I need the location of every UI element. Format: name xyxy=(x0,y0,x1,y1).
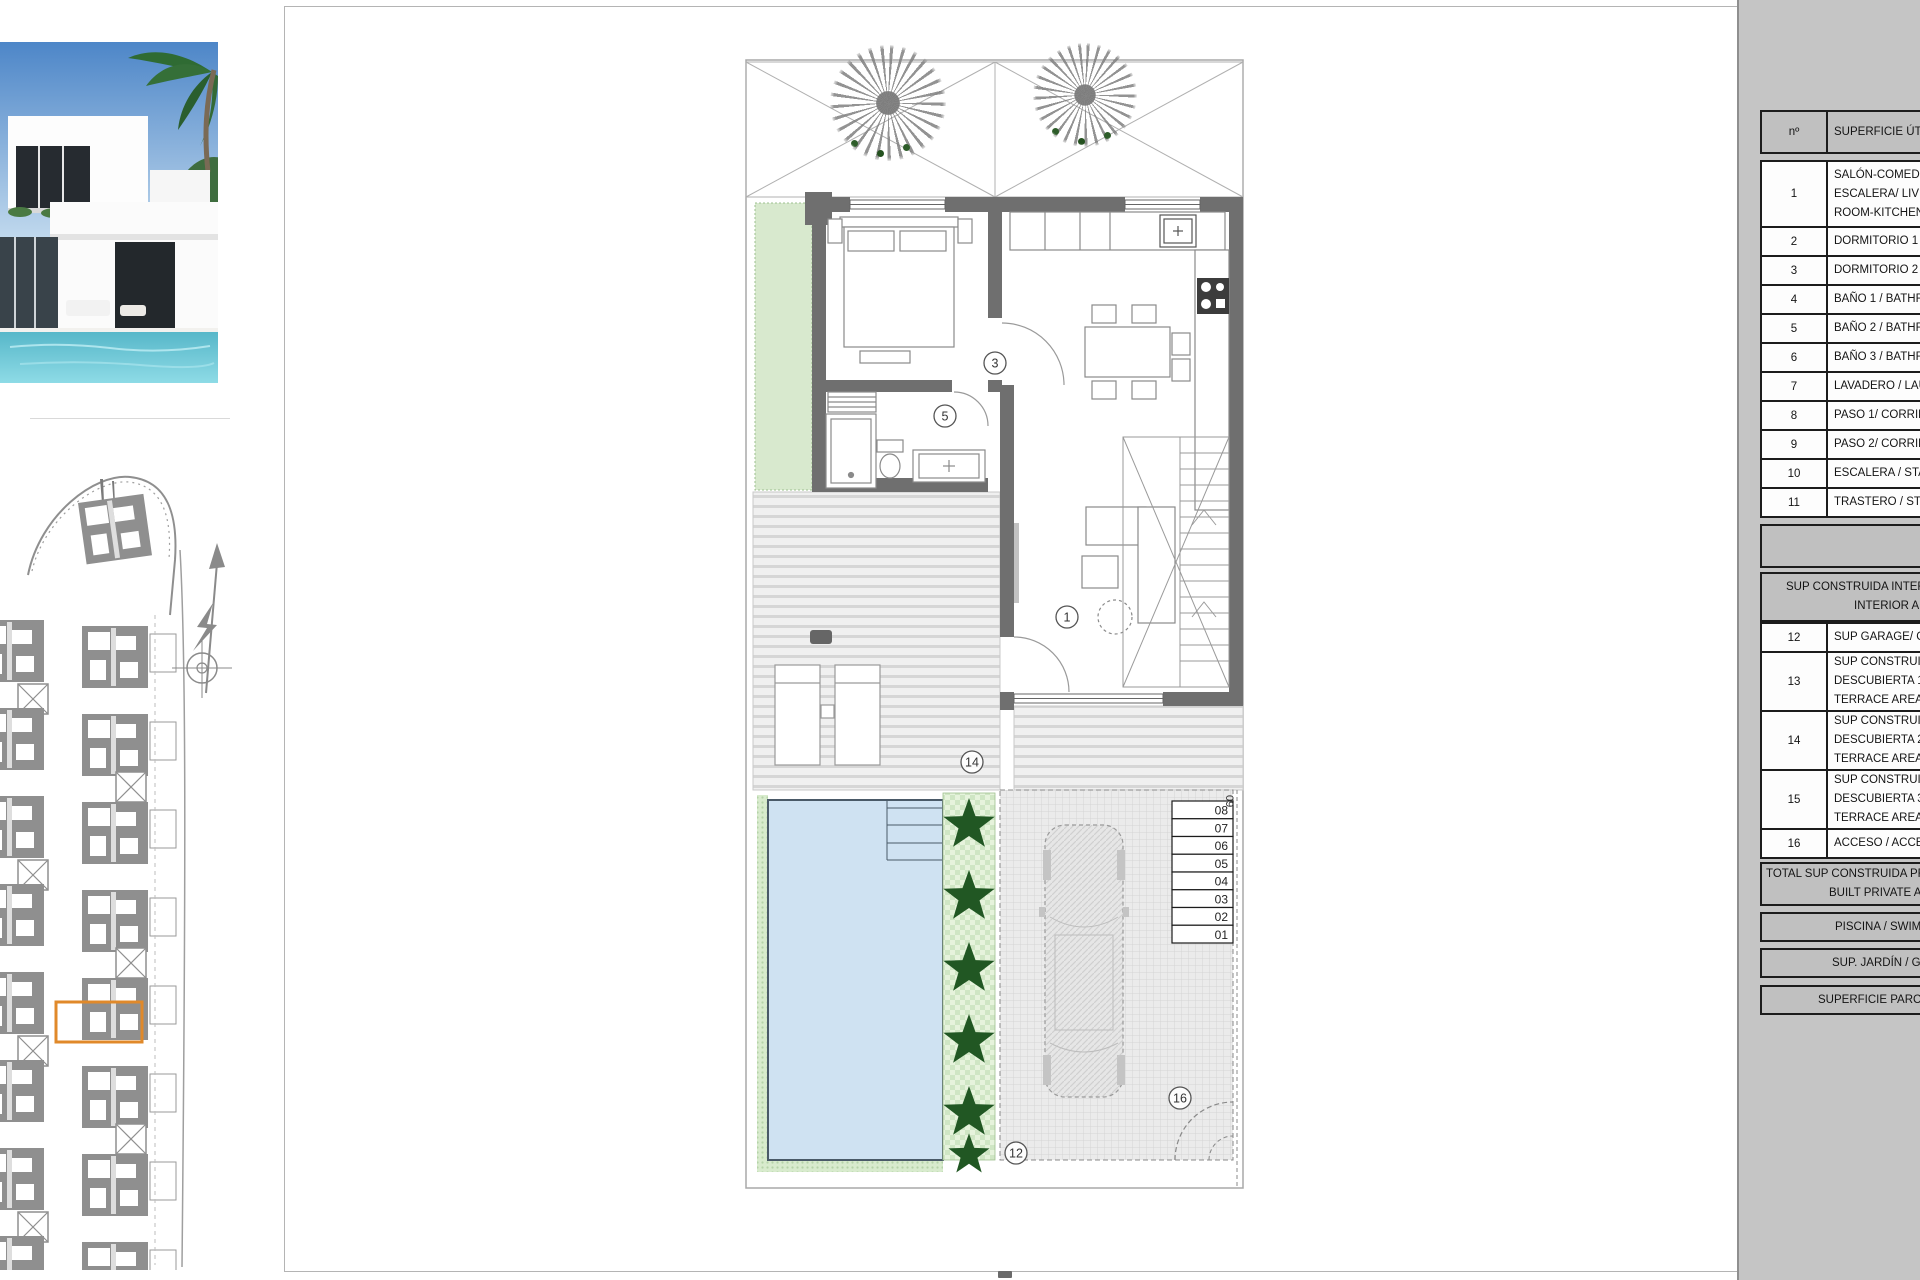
table-row: 5BAÑO 2 / BATHROOM xyxy=(1760,313,1920,344)
svg-text:1: 1 xyxy=(1064,611,1071,625)
svg-text:02: 02 xyxy=(1215,910,1229,924)
table-row-number: 4 xyxy=(1762,286,1828,313)
table-row-desc: ACCESO / ACCESS xyxy=(1828,830,1920,857)
svg-text:07: 07 xyxy=(1215,821,1229,835)
svg-text:12: 12 xyxy=(1009,1147,1023,1161)
table-row: 6BAÑO 3 / BATHROOM xyxy=(1760,342,1920,373)
table-row: 2DORMITORIO 1 / BEDR xyxy=(1760,226,1920,257)
bedroom-furniture xyxy=(828,217,972,363)
table-row: 7LAVADERO / LAUNDR xyxy=(1760,371,1920,402)
side-garden-strip xyxy=(755,203,812,490)
site-plot-rows xyxy=(0,620,176,1270)
table-row-number: 14 xyxy=(1762,712,1828,769)
table-row: 13SUP CONSTRUIDADESCUBIERTA 1 / OPTERRAC… xyxy=(1760,651,1920,712)
table-header: nº SUPERFICIE ÚTIL xyxy=(1760,110,1920,154)
table-row: 16ACCESO / ACCESS xyxy=(1760,828,1920,859)
area-table-panel: nº SUPERFICIE ÚTIL 1SALÓN-COMEDOR-COESCA… xyxy=(1737,0,1920,1280)
pool-deck-strip-bottom xyxy=(757,1160,943,1172)
svg-text:03: 03 xyxy=(1215,892,1229,906)
table-row: 1SALÓN-COMEDOR-COESCALERA/ LIVING-DIROOM… xyxy=(1760,160,1920,228)
sidebar-divider-line xyxy=(30,418,230,419)
svg-text:3: 3 xyxy=(992,357,999,371)
svg-text:04: 04 xyxy=(1215,875,1229,889)
table-row-desc: SUP CONSTRUIDADESCUBIERTA 1 / OPTERRACE … xyxy=(1828,653,1920,710)
table-row-desc: ESCALERA / STAIRS xyxy=(1828,460,1920,487)
dining-set xyxy=(1085,305,1190,399)
table-row-number: 13 xyxy=(1762,653,1828,710)
plot-area-band: SUPERFICIE PARCELA / P xyxy=(1760,985,1920,1015)
table-header-area: SUPERFICIE ÚTIL xyxy=(1828,112,1920,152)
terrace-grill xyxy=(810,630,832,644)
table-row-number: 1 xyxy=(1762,162,1828,226)
table-row-desc: SUP CONSTRUIDADESCUBIERTA 3 / OPTERRACE … xyxy=(1828,771,1920,828)
table-row-desc: BAÑO 2 / BATHROOM xyxy=(1828,315,1920,342)
table-row-desc: BAÑO 3 / BATHROOM xyxy=(1828,344,1920,371)
swimming-pool xyxy=(768,800,943,1160)
table-row: 14SUP CONSTRUIDADESCUBIERTA 2 / OPTERRAC… xyxy=(1760,710,1920,771)
svg-text:09: 09 xyxy=(1223,795,1235,807)
table-row-desc: TRASTERO / STORAG xyxy=(1828,489,1920,516)
table-row: 9PASO 2/ CORRIDOR 2 xyxy=(1760,429,1920,460)
table-row-number: 16 xyxy=(1762,830,1828,857)
table-row: 10ESCALERA / STAIRS xyxy=(1760,458,1920,489)
table-row-number: 2 xyxy=(1762,228,1828,255)
interior-area-band: SUP CONSTRUIDA INTERIORINTERIOR AREA xyxy=(1760,572,1920,622)
table-row-number: 15 xyxy=(1762,771,1828,828)
table-row: 12SUP GARAGE/ GARAG xyxy=(1760,622,1920,653)
table-row: 3DORMITORIO 2 / BEDR xyxy=(1760,255,1920,286)
floor-plan: 080706050403020109 135121416 xyxy=(740,55,1250,1195)
table-row-desc: LAVADERO / LAUNDR xyxy=(1828,373,1920,400)
table-row-desc: SUP CONSTRUIDADESCUBIERTA 2 / OPTERRACE … xyxy=(1828,712,1920,769)
hob-icon xyxy=(1197,278,1229,314)
car-outline xyxy=(1039,825,1129,1097)
svg-text:01: 01 xyxy=(1215,928,1229,942)
garden-band: SUP. JARDÍN / GARDEN xyxy=(1760,948,1920,978)
pool-band: PISCINA / SWIMMING xyxy=(1760,912,1920,942)
table-row: 8PASO 1/ CORRIDOR 1 xyxy=(1760,400,1920,431)
table-row-number: 12 xyxy=(1762,624,1828,651)
total-built-band: TOTAL SUP CONSTRUIDA PRIVABUILT PRIVATE … xyxy=(1760,862,1920,906)
svg-text:5: 5 xyxy=(942,410,949,424)
table-row-number: 5 xyxy=(1762,315,1828,342)
table-row-number: 6 xyxy=(1762,344,1828,371)
table-row-number: 7 xyxy=(1762,373,1828,400)
svg-text:06: 06 xyxy=(1215,839,1229,853)
table-row-desc: DORMITORIO 2 / BEDR xyxy=(1828,257,1920,284)
tree-icon xyxy=(1033,43,1137,147)
table-row: 4BAÑO 1 / BATHROOM xyxy=(1760,284,1920,315)
table-row-desc: SUP GARAGE/ GARAG xyxy=(1828,624,1920,651)
bathroom-fixtures xyxy=(826,392,985,488)
table-row-desc: BAÑO 1 / BATHROOM xyxy=(1828,286,1920,313)
sheet-footer-mark xyxy=(998,1271,1012,1278)
tree-icon xyxy=(830,45,946,161)
exterior-steps: 080706050403020109 xyxy=(1172,795,1235,943)
living-room-furniture xyxy=(1014,507,1175,634)
villa-photo-art xyxy=(0,42,218,383)
site-plan xyxy=(0,455,232,1270)
svg-text:16: 16 xyxy=(1173,1092,1187,1106)
table-row-number: 11 xyxy=(1762,489,1828,516)
rear-garden-x-area xyxy=(746,62,1243,197)
table-row-desc: PASO 1/ CORRIDOR 1 xyxy=(1828,402,1920,429)
pool-deck-strip xyxy=(757,795,768,1172)
table-row-number: 3 xyxy=(1762,257,1828,284)
table-row-number: 10 xyxy=(1762,460,1828,487)
table-row-number: 8 xyxy=(1762,402,1828,429)
table-row-desc: DORMITORIO 1 / BEDR xyxy=(1828,228,1920,255)
svg-text:05: 05 xyxy=(1215,857,1229,871)
table-row-desc: PASO 2/ CORRIDOR 2 xyxy=(1828,431,1920,458)
table-row: 11TRASTERO / STORAG xyxy=(1760,487,1920,518)
table-row: 15SUP CONSTRUIDADESCUBIERTA 3 / OPTERRAC… xyxy=(1760,769,1920,830)
table-header-no: nº xyxy=(1762,112,1828,152)
svg-text:14: 14 xyxy=(965,756,979,770)
table-spacer-band xyxy=(1760,524,1920,568)
terrace-strip xyxy=(1014,706,1243,790)
table-row-desc: SALÓN-COMEDOR-COESCALERA/ LIVING-DIROOM-… xyxy=(1828,162,1920,226)
villa-photo xyxy=(0,42,218,383)
table-row-number: 9 xyxy=(1762,431,1828,458)
